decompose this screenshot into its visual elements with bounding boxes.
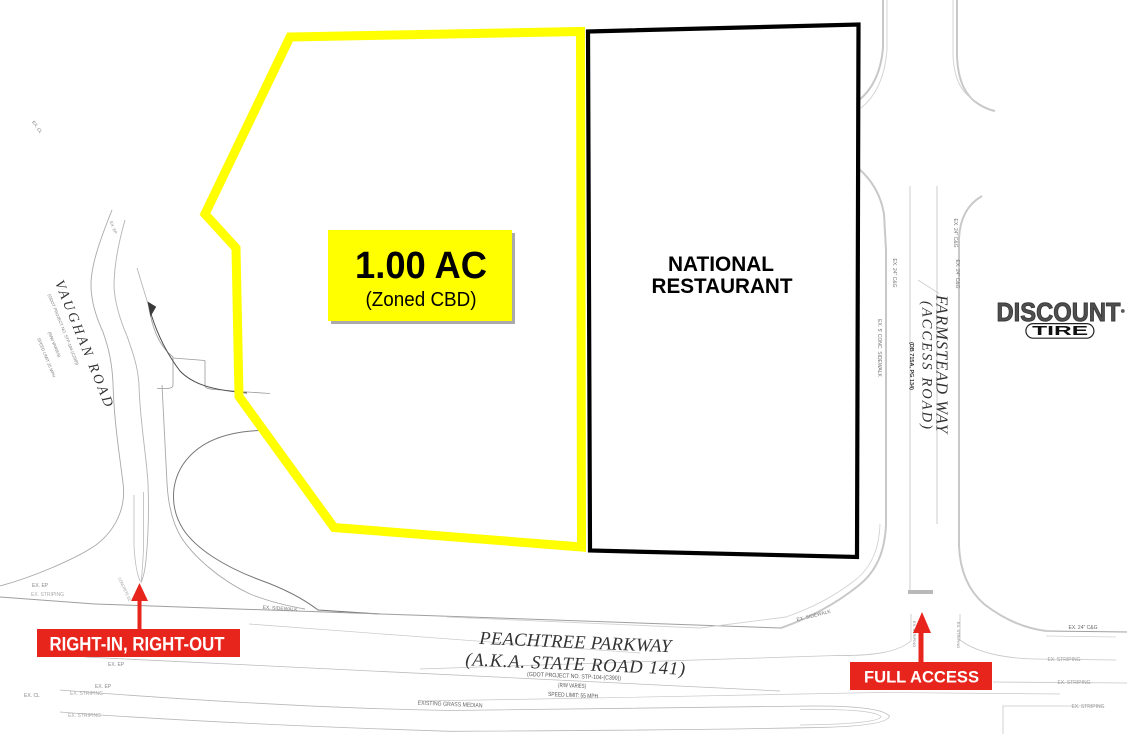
- svg-text:FULL ACCESS: FULL ACCESS: [864, 669, 979, 687]
- svg-text:RESTAURANT: RESTAURANT: [652, 275, 793, 298]
- svg-text:EX. 24" C&G: EX. 24" C&G: [952, 218, 958, 247]
- svg-text:EX. STRIPING: EX. STRIPING: [1047, 657, 1080, 663]
- svg-text:NATIONAL: NATIONAL: [668, 253, 774, 276]
- svg-text:EX. STRIPING: EX. STRIPING: [1071, 704, 1104, 710]
- svg-text:EX. EP: EX. EP: [32, 583, 49, 589]
- svg-text:EX. STRIPING: EX. STRIPING: [1057, 680, 1090, 686]
- svg-text:TIRE: TIRE: [1032, 324, 1088, 338]
- svg-text:EX. EP: EX. EP: [108, 662, 125, 668]
- svg-text:EX. STRIPING: EX. STRIPING: [956, 622, 961, 648]
- svg-text:EX. 24" C&G: EX. 24" C&G: [891, 258, 897, 287]
- svg-text:(DB 715A, PG 134): (DB 715A, PG 134): [908, 342, 914, 390]
- svg-text:EX. STRIPING: EX. STRIPING: [31, 592, 64, 598]
- svg-text:1.00 AC: 1.00 AC: [355, 245, 487, 287]
- svg-text:EX. STRIPING: EX. STRIPING: [70, 691, 103, 697]
- svg-text:EX. CL: EX. CL: [24, 693, 40, 699]
- svg-text:(R/W VARIES): (R/W VARIES): [558, 683, 586, 690]
- svg-text:DISCOUNT: DISCOUNT: [997, 297, 1121, 327]
- svg-text:(Zoned CBD): (Zoned CBD): [366, 289, 477, 311]
- svg-text:EX. 24" C&G: EX. 24" C&G: [954, 259, 960, 288]
- svg-text:EX. 24" C&G: EX. 24" C&G: [1068, 625, 1097, 631]
- svg-text:RIGHT-IN, RIGHT-OUT: RIGHT-IN, RIGHT-OUT: [50, 635, 225, 656]
- svg-text:EX. STRIPING: EX. STRIPING: [912, 621, 917, 647]
- svg-text:EX. EP: EX. EP: [95, 684, 112, 690]
- svg-text:EX. STRIPING: EX. STRIPING: [68, 713, 101, 719]
- svg-text:EX. 5' CONC. SIDEWALK: EX. 5' CONC. SIDEWALK: [876, 319, 882, 377]
